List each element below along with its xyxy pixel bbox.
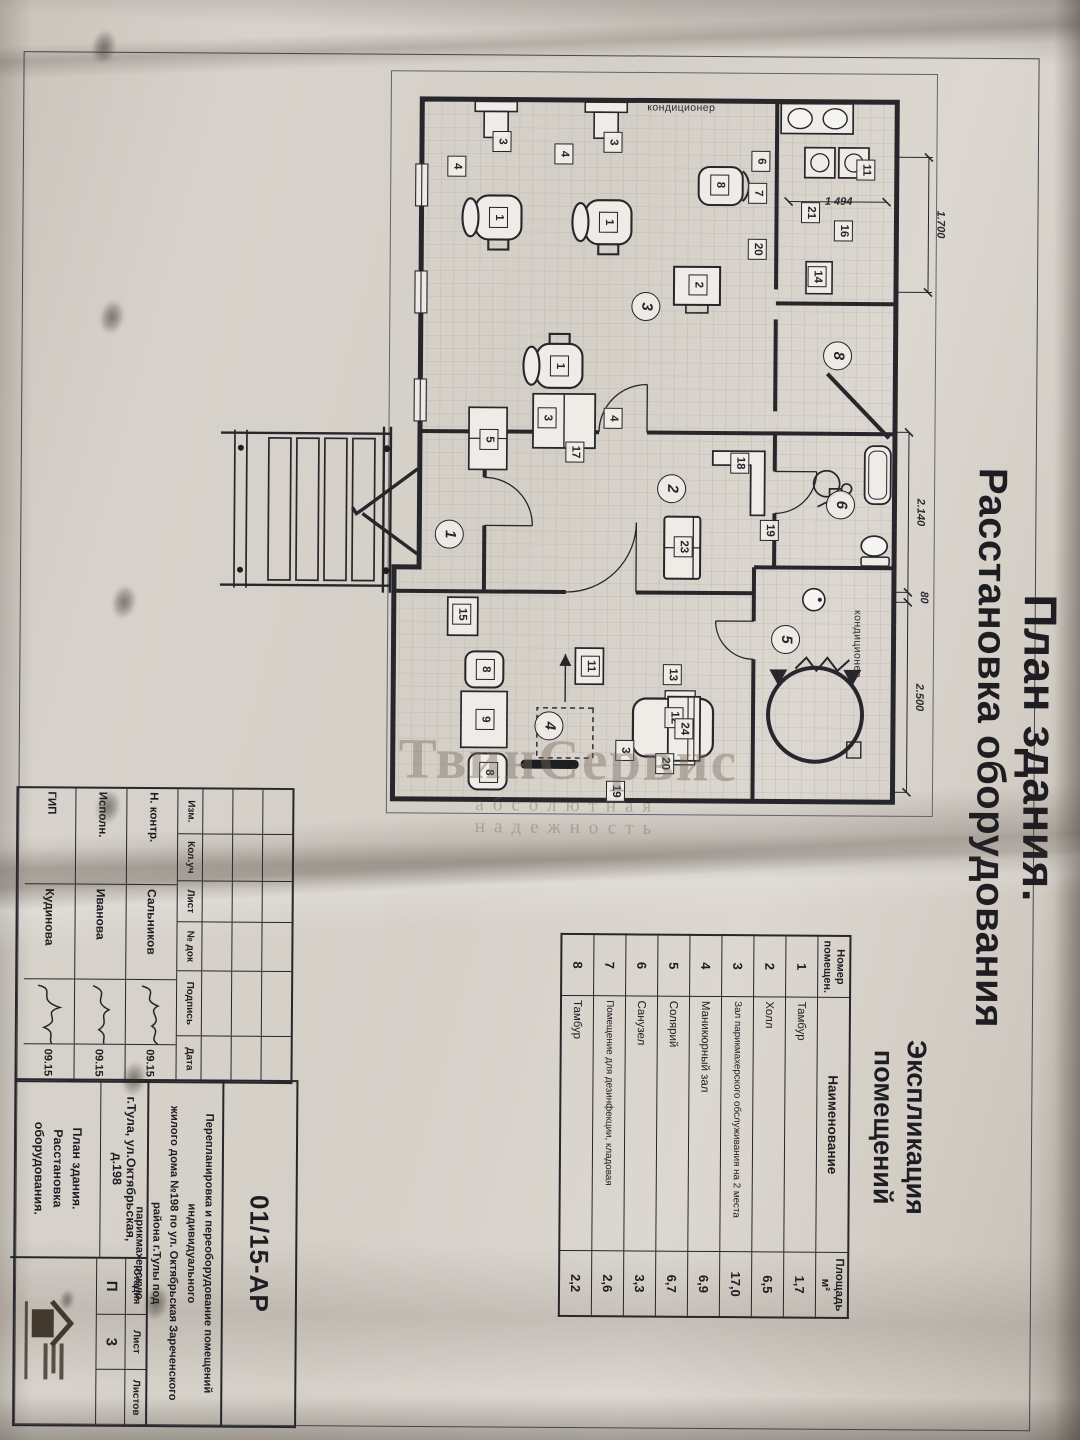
title-block: Изм.Кол.учЛист№ докПодписьДата Н. контр.… (16, 786, 300, 1424)
room-number-circle: 6 (826, 490, 855, 519)
col-header-name: Наименование (815, 997, 850, 1252)
explication-title-line2: помещений (865, 935, 901, 1319)
signature-date: 09.15 (74, 1045, 124, 1081)
room-number-cell: 4 (689, 935, 721, 997)
stage-value: П (97, 1259, 125, 1314)
explication-row: 6Санузел3,3 (623, 934, 658, 1316)
room-number-circle: 3 (631, 292, 660, 321)
equipment-mark: 17 (565, 441, 584, 462)
room-name-cell: Тамбур (783, 997, 817, 1252)
watermark-line2: абсолютная надежность (377, 793, 757, 841)
col-header-area: Площадь м² (815, 1252, 849, 1318)
room-number-circle: 8 (823, 341, 852, 370)
dimension-label: 1.700 (934, 211, 946, 239)
signature-autograph (24, 979, 74, 1044)
room-number-cell: 2 (753, 935, 785, 997)
explication-row: 8Тамбур2,2 (558, 934, 593, 1316)
plan-annotations: 1234568334411131745111621146782021819231… (204, 47, 949, 832)
signature-row: Н. контр.Сальников09.15 (124, 789, 177, 1081)
object-address: г.Тула, ул.Октябрьская, д.198 (99, 1081, 147, 1257)
sheet-name: План здания. Расстановка оборудования. (29, 1080, 100, 1256)
equipment-mark: 8 (710, 174, 729, 195)
drawing-sheet: План здания. Расстановка оборудования (0, 0, 1078, 1440)
dimension-label: 80 (918, 591, 930, 603)
revision-col-header: № док (177, 922, 201, 971)
equipment-mark: 13 (663, 664, 682, 685)
lists-value (96, 1370, 124, 1425)
explication-row: 1Тамбур1,7 (783, 936, 818, 1318)
room-number-circle: 1 (435, 520, 464, 549)
equipment-mark: 11 (856, 159, 875, 180)
signature-role: ГИП (25, 788, 76, 884)
room-number-cell: 3 (721, 935, 753, 997)
revision-col-header: Дата (176, 1036, 200, 1081)
floor-plan: 1234568334411131745111621146782021819231… (204, 47, 949, 832)
room-area-cell: 2,6 (591, 1251, 623, 1317)
room-area-cell: 2,2 (558, 1250, 591, 1316)
equipment-mark: 8 (476, 659, 495, 680)
equipment-mark: 4 (447, 156, 466, 177)
room-area-cell: 17,0 (719, 1252, 751, 1318)
room-name-cell: Холл (751, 997, 785, 1252)
equipment-mark: 3 (538, 407, 557, 428)
explication: Экспликация помещений Номер помещен. Наи… (557, 933, 933, 1320)
revision-blank-row (200, 789, 232, 1081)
room-area-cell: 6,7 (655, 1251, 687, 1317)
document-code: 01/15-АР (220, 1082, 296, 1427)
revision-col-header: Изм. (178, 789, 202, 834)
equipment-mark: 14 (808, 266, 827, 287)
title-block-main: 01/15-АР Перепланировка и переоборудован… (12, 1078, 298, 1428)
explication-row: 3Зал парикмахерского обслуживания на 2 м… (719, 935, 754, 1317)
stage-table: Стадия П Лист 3 Листов (95, 1259, 146, 1425)
sheet-title-line1: План здания. (1011, 363, 1068, 1133)
equipment-mark: 4 (604, 408, 623, 429)
air-conditioner-label: кондиционер (851, 610, 863, 678)
equipment-mark: 19 (760, 520, 779, 541)
explication-row: 5Солярий6,7 (655, 935, 690, 1317)
photo-scene: План здания. Расстановка оборудования (0, 0, 1080, 1440)
room-number-cell: 5 (657, 935, 689, 997)
explication-row: 2Холл6,5 (751, 935, 786, 1317)
room-number-cell: 7 (593, 934, 625, 996)
explication-row: 7Помещение для дезинфекции, кладовая2,6 (591, 934, 626, 1316)
room-name-cell: Зал парикмахерского обслуживания на 2 ме… (719, 997, 753, 1252)
equipment-mark: 18 (730, 453, 749, 474)
equipment-mark: 15 (452, 604, 471, 625)
room-name-cell: Помещение для дезинфекции, кладовая (591, 996, 625, 1251)
signature-row: ГИПКудинова09.15 (23, 788, 75, 1080)
equipment-mark: 7 (748, 183, 767, 204)
equipment-mark: 21 (801, 202, 820, 223)
revision-col-header: Кол.уч (178, 834, 202, 881)
title-block-revision-table: Изм.Кол.учЛист№ докПодписьДата Н. контр.… (14, 786, 294, 1084)
equipment-mark: 6 (751, 151, 770, 172)
equipment-mark: 3 (492, 131, 511, 152)
equipment-mark: 3 (603, 132, 622, 153)
signature-date: 09.15 (23, 1044, 73, 1080)
col-header-number: Номер помещен. (817, 936, 851, 998)
project-name: Перепланировка и переоборудование помеще… (145, 1081, 222, 1426)
room-name-cell: Маникюрный зал (687, 996, 721, 1251)
signature-autograph (75, 980, 125, 1045)
equipment-mark: 23 (674, 536, 693, 557)
room-number-cell: 6 (625, 934, 657, 996)
room-area-cell: 3,3 (623, 1251, 655, 1317)
watermark: ТвинСервис абсолютная надежность (377, 726, 758, 841)
object-cell: г.Тула, ул.Октябрьская, д.198 План здани… (10, 1080, 147, 1259)
room-name-cell: Солярий (655, 996, 689, 1251)
list-label: Лист (124, 1315, 145, 1370)
equipment-mark: 2 (688, 274, 707, 295)
equipment-mark: 1 (489, 207, 508, 228)
explication-table: Номер помещен. Наименование Площадь м² 1… (557, 933, 851, 1319)
lists-label: Листов (124, 1370, 145, 1425)
sheet-title: План здания. Расстановка оборудования (967, 363, 1068, 1134)
room-number-circle: 2 (657, 474, 686, 503)
revision-blank-row (230, 790, 262, 1082)
signature-row: Исполн.Иванова09.15 (73, 789, 126, 1081)
signature-name: Кудинова (24, 884, 75, 979)
room-number-cell: 8 (561, 934, 594, 996)
revision-col-header: Лист (178, 881, 202, 922)
signature-name: Сальников (126, 885, 177, 980)
air-conditioner-label: кондиционер (647, 102, 715, 114)
signature-autograph (126, 980, 176, 1045)
equipment-mark: 11 (581, 656, 600, 677)
explication-row: 4Маникюрный зал6,9 (687, 935, 722, 1317)
room-number-circle: 5 (771, 625, 800, 654)
watermark-line1: ТвинСервис (378, 726, 759, 795)
signature-name: Иванова (75, 885, 126, 980)
explication-title-line1: Экспликация (898, 935, 934, 1319)
room-name-cell: Санузел (623, 996, 657, 1251)
equipment-mark: 16 (834, 220, 853, 241)
room-name-cell: Тамбур (559, 995, 593, 1250)
equipment-mark: 20 (748, 239, 767, 260)
revision-header-row: Изм.Кол.учЛист№ докПодписьДата (175, 789, 202, 1081)
equipment-mark: 4 (554, 143, 573, 164)
dimension-label: 1 494 (825, 196, 853, 208)
equipment-mark: 1 (550, 355, 569, 376)
agency-logo (9, 1258, 96, 1425)
room-area-cell: 6,9 (687, 1251, 719, 1317)
room-area-cell: 6,5 (751, 1252, 783, 1318)
dimension-label: 2.140 (914, 499, 926, 527)
room-area-cell: 1,7 (783, 1252, 815, 1318)
dimension-label: 2.500 (913, 684, 925, 712)
equipment-mark: 5 (479, 429, 498, 450)
equipment-mark: 1 (599, 212, 618, 233)
list-value: 3 (96, 1314, 124, 1369)
revision-blank-row (260, 790, 292, 1082)
room-number-cell: 1 (785, 936, 817, 998)
revision-col-header: Подпись (177, 971, 201, 1036)
signature-role: Н. контр. (127, 789, 178, 885)
explication-title: Экспликация помещений (865, 935, 934, 1319)
sheet-title-line2: Расстановка оборудования (967, 363, 1016, 1133)
